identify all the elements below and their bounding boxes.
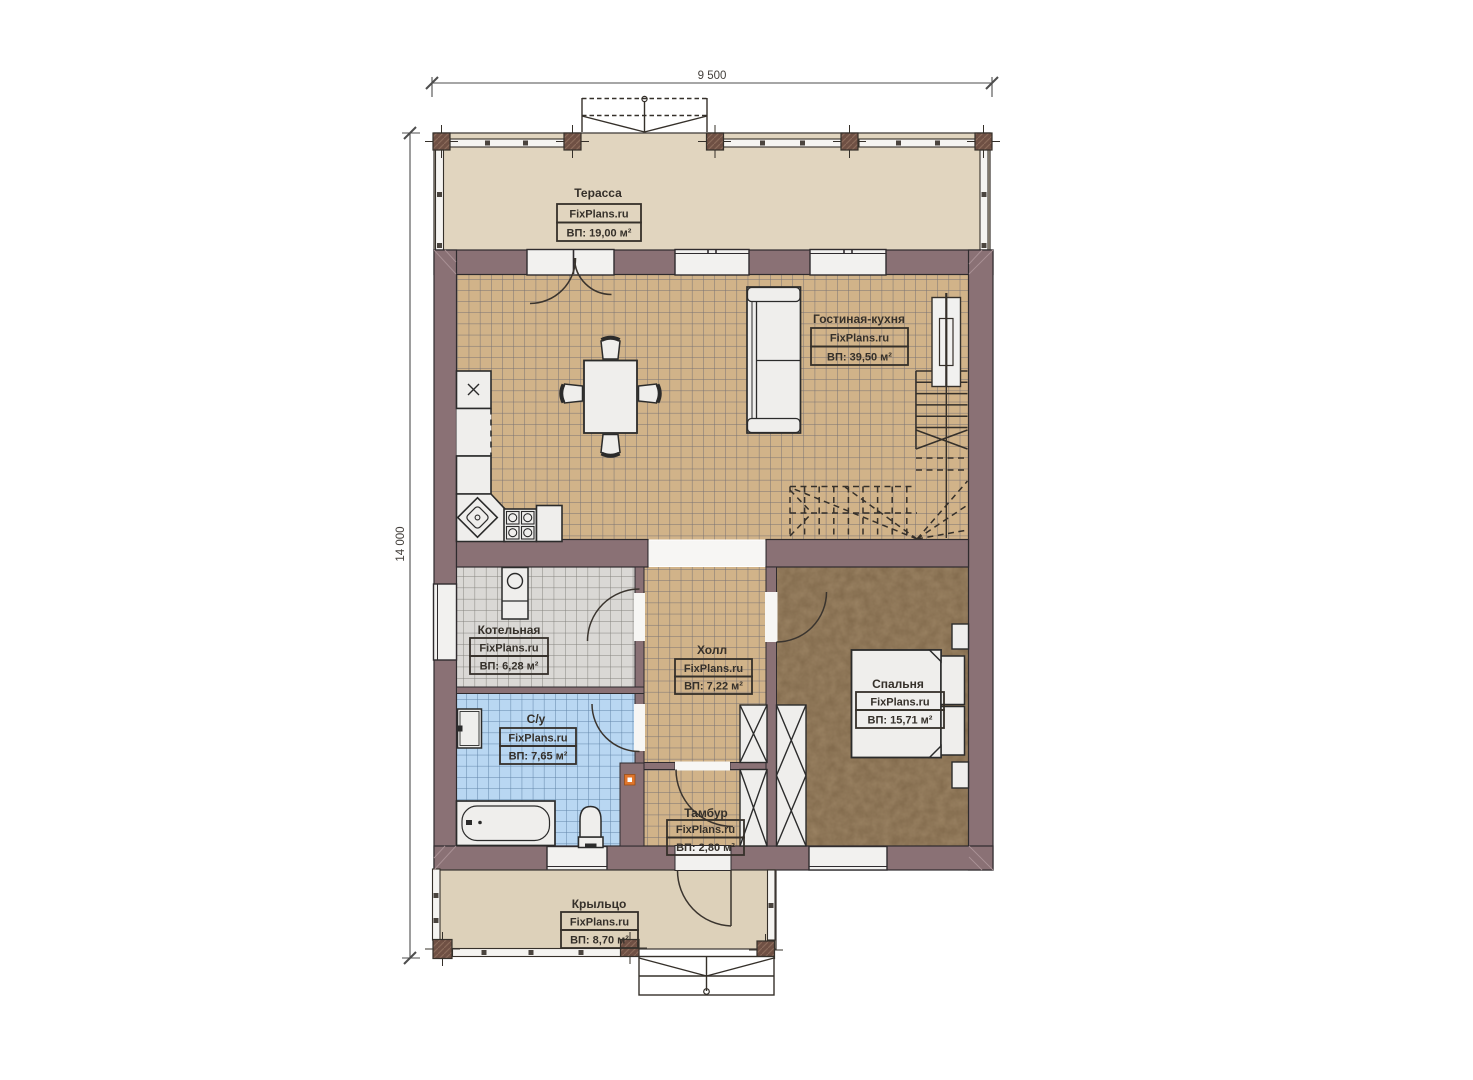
svg-text:Тамбур: Тамбур <box>684 806 728 820</box>
svg-text:9 500: 9 500 <box>698 70 727 82</box>
svg-text:FixPlans.ru: FixPlans.ru <box>570 917 629 929</box>
svg-text:FixPlans.ru: FixPlans.ru <box>479 643 538 655</box>
svg-text:14 000: 14 000 <box>395 526 407 561</box>
svg-text:Спальня: Спальня <box>872 677 924 691</box>
svg-text:Крыльцо: Крыльцо <box>572 897 627 911</box>
svg-text:ВП: 7,65 м²: ВП: 7,65 м² <box>509 751 568 763</box>
svg-text:ВП: 6,28 м²: ВП: 6,28 м² <box>480 661 539 673</box>
svg-text:ВП: 2,80 м²: ВП: 2,80 м² <box>676 842 735 854</box>
svg-text:Холл: Холл <box>697 643 727 657</box>
svg-text:FixPlans.ru: FixPlans.ru <box>684 663 743 675</box>
svg-text:FixPlans.ru: FixPlans.ru <box>569 209 628 221</box>
svg-text:ВП: 7,22 м²: ВП: 7,22 м² <box>684 681 743 693</box>
svg-text:ВП: 8,70 м²: ВП: 8,70 м² <box>570 935 629 947</box>
svg-text:Терасса: Терасса <box>574 186 622 200</box>
svg-text:ВП: 39,50 м²: ВП: 39,50 м² <box>827 352 892 364</box>
svg-text:FixPlans.ru: FixPlans.ru <box>870 697 929 709</box>
svg-text:ВП: 15,71 м²: ВП: 15,71 м² <box>868 715 933 727</box>
svg-text:ВП: 19,00 м²: ВП: 19,00 м² <box>567 228 632 240</box>
svg-text:FixPlans.ru: FixPlans.ru <box>508 733 567 745</box>
svg-text:С/у: С/у <box>527 712 546 726</box>
svg-text:Котельная: Котельная <box>478 623 541 637</box>
svg-text:FixPlans.ru: FixPlans.ru <box>830 333 889 345</box>
svg-text:FixPlans.ru: FixPlans.ru <box>676 824 735 836</box>
svg-text:Гостиная-кухня: Гостиная-кухня <box>813 312 905 326</box>
